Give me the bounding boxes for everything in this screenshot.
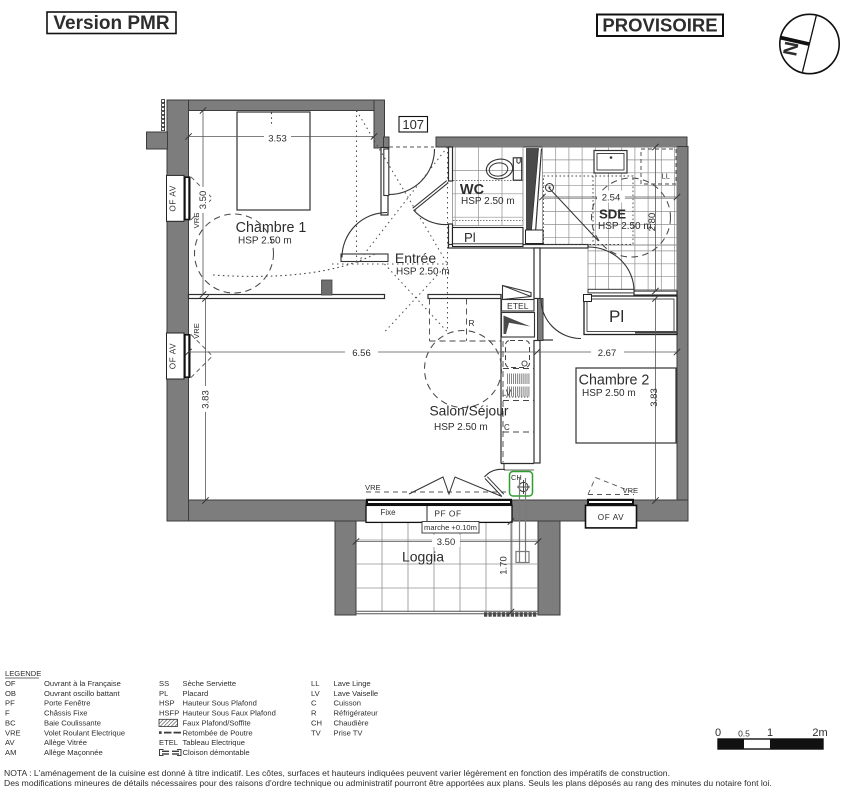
svg-text:Volet Roulant Electrique: Volet Roulant Electrique <box>44 728 125 737</box>
svg-text:3.50: 3.50 <box>198 191 209 210</box>
svg-text:AV: AV <box>5 738 16 747</box>
svg-text:HSP 2.50 m: HSP 2.50 m <box>238 236 292 247</box>
svg-text:2.54: 2.54 <box>602 193 621 204</box>
svg-text:Pl: Pl <box>464 230 476 245</box>
svg-text:HSFP: HSFP <box>159 709 179 718</box>
svg-text:OF AV: OF AV <box>169 343 178 370</box>
svg-text:Chaudière: Chaudière <box>334 719 369 728</box>
svg-text:BC: BC <box>5 719 16 728</box>
svg-text:Entrée: Entrée <box>395 250 436 266</box>
svg-text:ETEL: ETEL <box>159 738 178 747</box>
svg-text:TV: TV <box>311 728 322 737</box>
svg-text:OB: OB <box>5 689 16 698</box>
svg-text:VRE: VRE <box>5 728 21 737</box>
svg-text:2m: 2m <box>812 727 827 739</box>
svg-text:HSP 2.50 m: HSP 2.50 m <box>461 196 515 207</box>
svg-text:Hauteur Sous Plafond: Hauteur Sous Plafond <box>183 699 257 708</box>
svg-text:Baie Coulissante: Baie Coulissante <box>44 719 101 728</box>
svg-text:PF: PF <box>5 699 15 708</box>
svg-text:VRE: VRE <box>365 483 381 492</box>
svg-text:PL: PL <box>159 689 168 698</box>
svg-text:Salon/Séjour: Salon/Séjour <box>429 404 508 419</box>
svg-text:HSP 2.50 m: HSP 2.50 m <box>434 422 488 433</box>
svg-text:Prise TV: Prise TV <box>334 728 364 737</box>
svg-text:LV: LV <box>502 389 512 398</box>
svg-text:Tableau Electrique: Tableau Electrique <box>183 738 245 747</box>
svg-text:HSP: HSP <box>159 699 175 708</box>
svg-text:PF OF: PF OF <box>434 509 461 519</box>
svg-text:6.56: 6.56 <box>352 348 371 359</box>
svg-text:Allège Maçonnée: Allège Maçonnée <box>44 748 103 757</box>
svg-text:Des modifications mineures de: Des modifications mineures de détails né… <box>4 778 772 788</box>
svg-text:OF AV: OF AV <box>169 185 178 212</box>
svg-text:C: C <box>504 423 510 432</box>
svg-text:Allège Vitrée: Allège Vitrée <box>44 738 87 747</box>
svg-text:Pl: Pl <box>609 307 624 326</box>
svg-text:SDE: SDE <box>599 207 626 222</box>
svg-text:Chambre 1: Chambre 1 <box>236 220 307 236</box>
svg-text:3.83: 3.83 <box>649 388 660 407</box>
svg-text:0: 0 <box>715 727 721 739</box>
svg-text:Porte Fenêtre: Porte Fenêtre <box>44 699 90 708</box>
svg-text:3.50: 3.50 <box>437 537 456 548</box>
svg-text:2.67: 2.67 <box>598 348 617 359</box>
svg-text:Hauteur Sous Faux Plafond: Hauteur Sous Faux Plafond <box>183 709 276 718</box>
svg-text:Placard: Placard <box>183 689 209 698</box>
svg-text:Ouvrant à la Française: Ouvrant à la Française <box>44 679 121 688</box>
svg-text:3.83: 3.83 <box>201 390 212 409</box>
svg-text:Châssis Fixe: Châssis Fixe <box>44 709 87 718</box>
svg-text:Lave Linge: Lave Linge <box>334 679 371 688</box>
svg-text:Ouvrant oscillo battant: Ouvrant oscillo battant <box>44 689 120 698</box>
svg-text:SS: SS <box>159 679 169 688</box>
svg-text:HSP 2.50 m: HSP 2.50 m <box>598 221 652 232</box>
svg-text:Retombée de Poutre: Retombée de Poutre <box>183 728 253 737</box>
svg-text:AM: AM <box>5 748 16 757</box>
svg-text:Réfrigérateur: Réfrigérateur <box>334 709 379 718</box>
svg-text:NOTA : L'aménagement de la cui: NOTA : L'aménagement de la cuisine est d… <box>4 768 670 778</box>
svg-text:VRE: VRE <box>192 213 201 229</box>
svg-text:Version PMR: Version PMR <box>53 13 169 34</box>
svg-text:LEGENDE: LEGENDE <box>5 669 41 678</box>
svg-text:VRE: VRE <box>623 486 639 495</box>
svg-text:R: R <box>311 709 317 718</box>
svg-text:Faux Plafond/Soffite: Faux Plafond/Soffite <box>183 719 251 728</box>
svg-text:1: 1 <box>767 727 773 739</box>
svg-text:Loggia: Loggia <box>402 549 444 565</box>
svg-text:Lave Vaiselle: Lave Vaiselle <box>334 689 379 698</box>
svg-text:LV: LV <box>311 689 321 698</box>
svg-text:OF: OF <box>5 679 16 688</box>
svg-text:CH: CH <box>311 719 322 728</box>
svg-text:C: C <box>311 699 317 708</box>
svg-text:107: 107 <box>402 117 424 132</box>
svg-text:Cloison démontable: Cloison démontable <box>183 748 250 757</box>
svg-text:HSP 2.50 m: HSP 2.50 m <box>582 388 636 399</box>
svg-text:F: F <box>5 709 10 718</box>
svg-text:0.5: 0.5 <box>738 729 750 739</box>
svg-text:marche +0.10m: marche +0.10m <box>424 523 477 532</box>
svg-text:ETEL: ETEL <box>507 301 529 311</box>
svg-text:Sèche Serviette: Sèche Serviette <box>183 679 237 688</box>
svg-text:PROVISOIRE: PROVISOIRE <box>602 14 717 35</box>
svg-text:LL: LL <box>662 172 670 181</box>
svg-text:Fixe: Fixe <box>380 508 396 517</box>
svg-text:R: R <box>469 318 475 328</box>
svg-text:1.70: 1.70 <box>499 556 510 575</box>
svg-text:Chambre 2: Chambre 2 <box>579 373 650 389</box>
svg-text:3.53: 3.53 <box>268 134 287 145</box>
svg-text:HSP 2.50 m: HSP 2.50 m <box>396 267 450 278</box>
svg-text:LL: LL <box>311 679 319 688</box>
svg-text:OF AV: OF AV <box>598 513 625 522</box>
svg-text:Cuisson: Cuisson <box>334 699 361 708</box>
